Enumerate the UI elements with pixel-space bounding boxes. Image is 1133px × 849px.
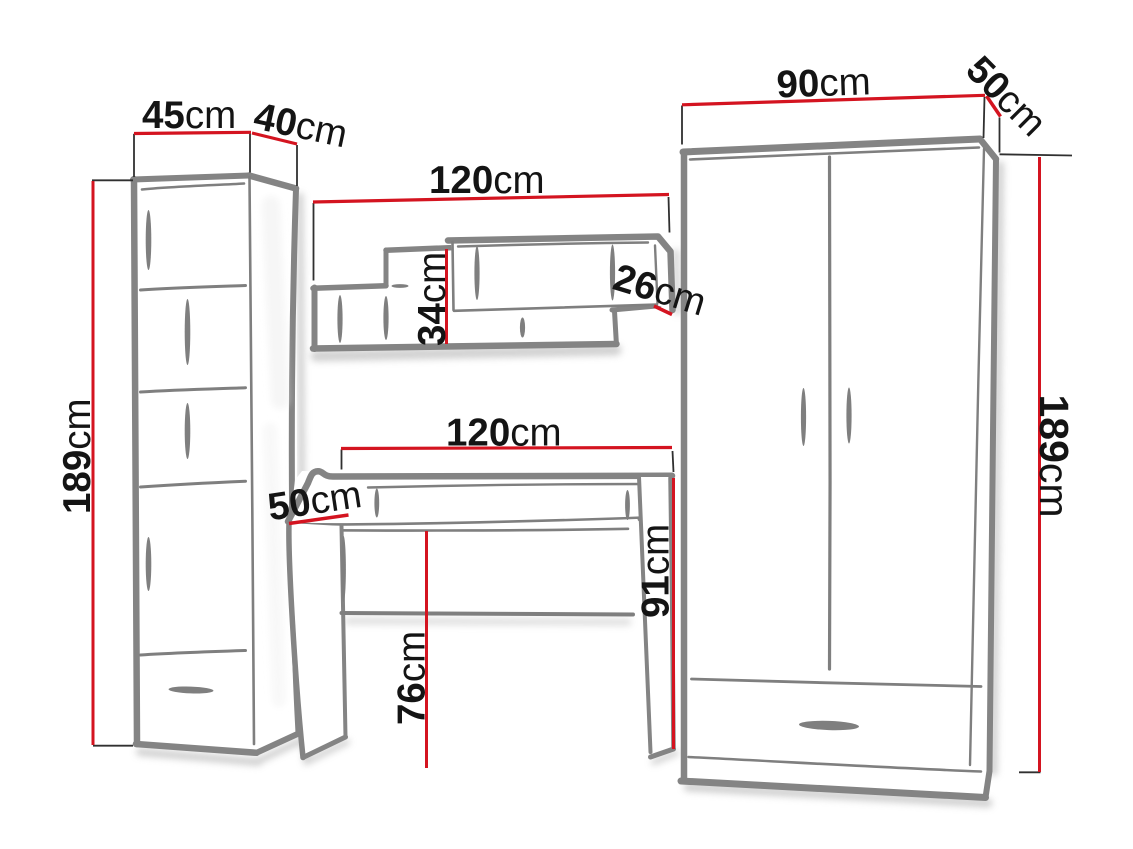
svg-text:120cm: 120cm xyxy=(429,159,545,202)
svg-text:90cm: 90cm xyxy=(776,60,872,106)
svg-text:189cm: 189cm xyxy=(1031,395,1077,518)
svg-text:120cm: 120cm xyxy=(446,411,562,454)
svg-text:45cm: 45cm xyxy=(142,94,236,137)
svg-text:76cm: 76cm xyxy=(391,631,434,725)
svg-text:40cm: 40cm xyxy=(250,95,351,157)
svg-text:34cm: 34cm xyxy=(411,252,454,346)
svg-text:91cm: 91cm xyxy=(635,524,678,618)
svg-text:189cm: 189cm xyxy=(56,398,99,514)
